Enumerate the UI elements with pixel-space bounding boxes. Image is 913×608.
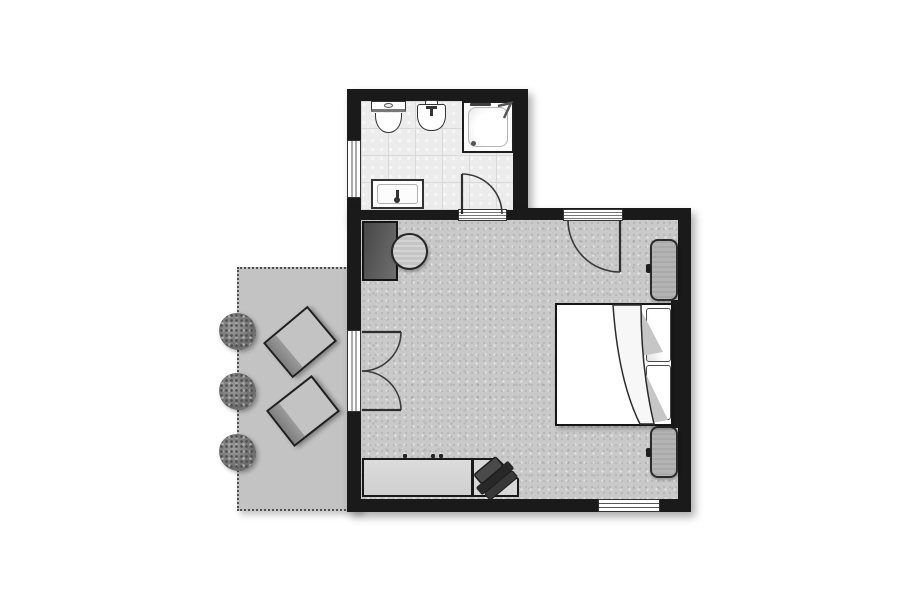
desk-knob	[403, 454, 407, 458]
bush-plant	[219, 313, 256, 350]
desk-knob	[439, 454, 443, 458]
shower-drain	[471, 141, 476, 146]
nightstand-lower	[650, 426, 678, 478]
entry-door-sill	[563, 209, 623, 221]
pillow	[646, 365, 671, 420]
round-table	[391, 233, 428, 270]
french-door-frame	[347, 330, 361, 412]
bidet-faucet-icon	[430, 106, 433, 116]
bush-plant	[219, 373, 256, 410]
desk-knob	[431, 454, 435, 458]
floor-plan	[0, 0, 913, 608]
bedroom-window	[598, 499, 660, 512]
bathroom-window	[347, 140, 361, 198]
bathroom-door-sill	[458, 209, 507, 221]
bush-plant	[219, 434, 256, 471]
desk	[362, 458, 473, 497]
nightstand-knob	[646, 264, 651, 273]
toilet-flush-button	[384, 103, 393, 108]
pillow	[646, 308, 671, 362]
nightstand-upper	[650, 239, 678, 301]
nightstand-knob	[646, 448, 651, 457]
sink-faucet-icon	[394, 197, 400, 203]
